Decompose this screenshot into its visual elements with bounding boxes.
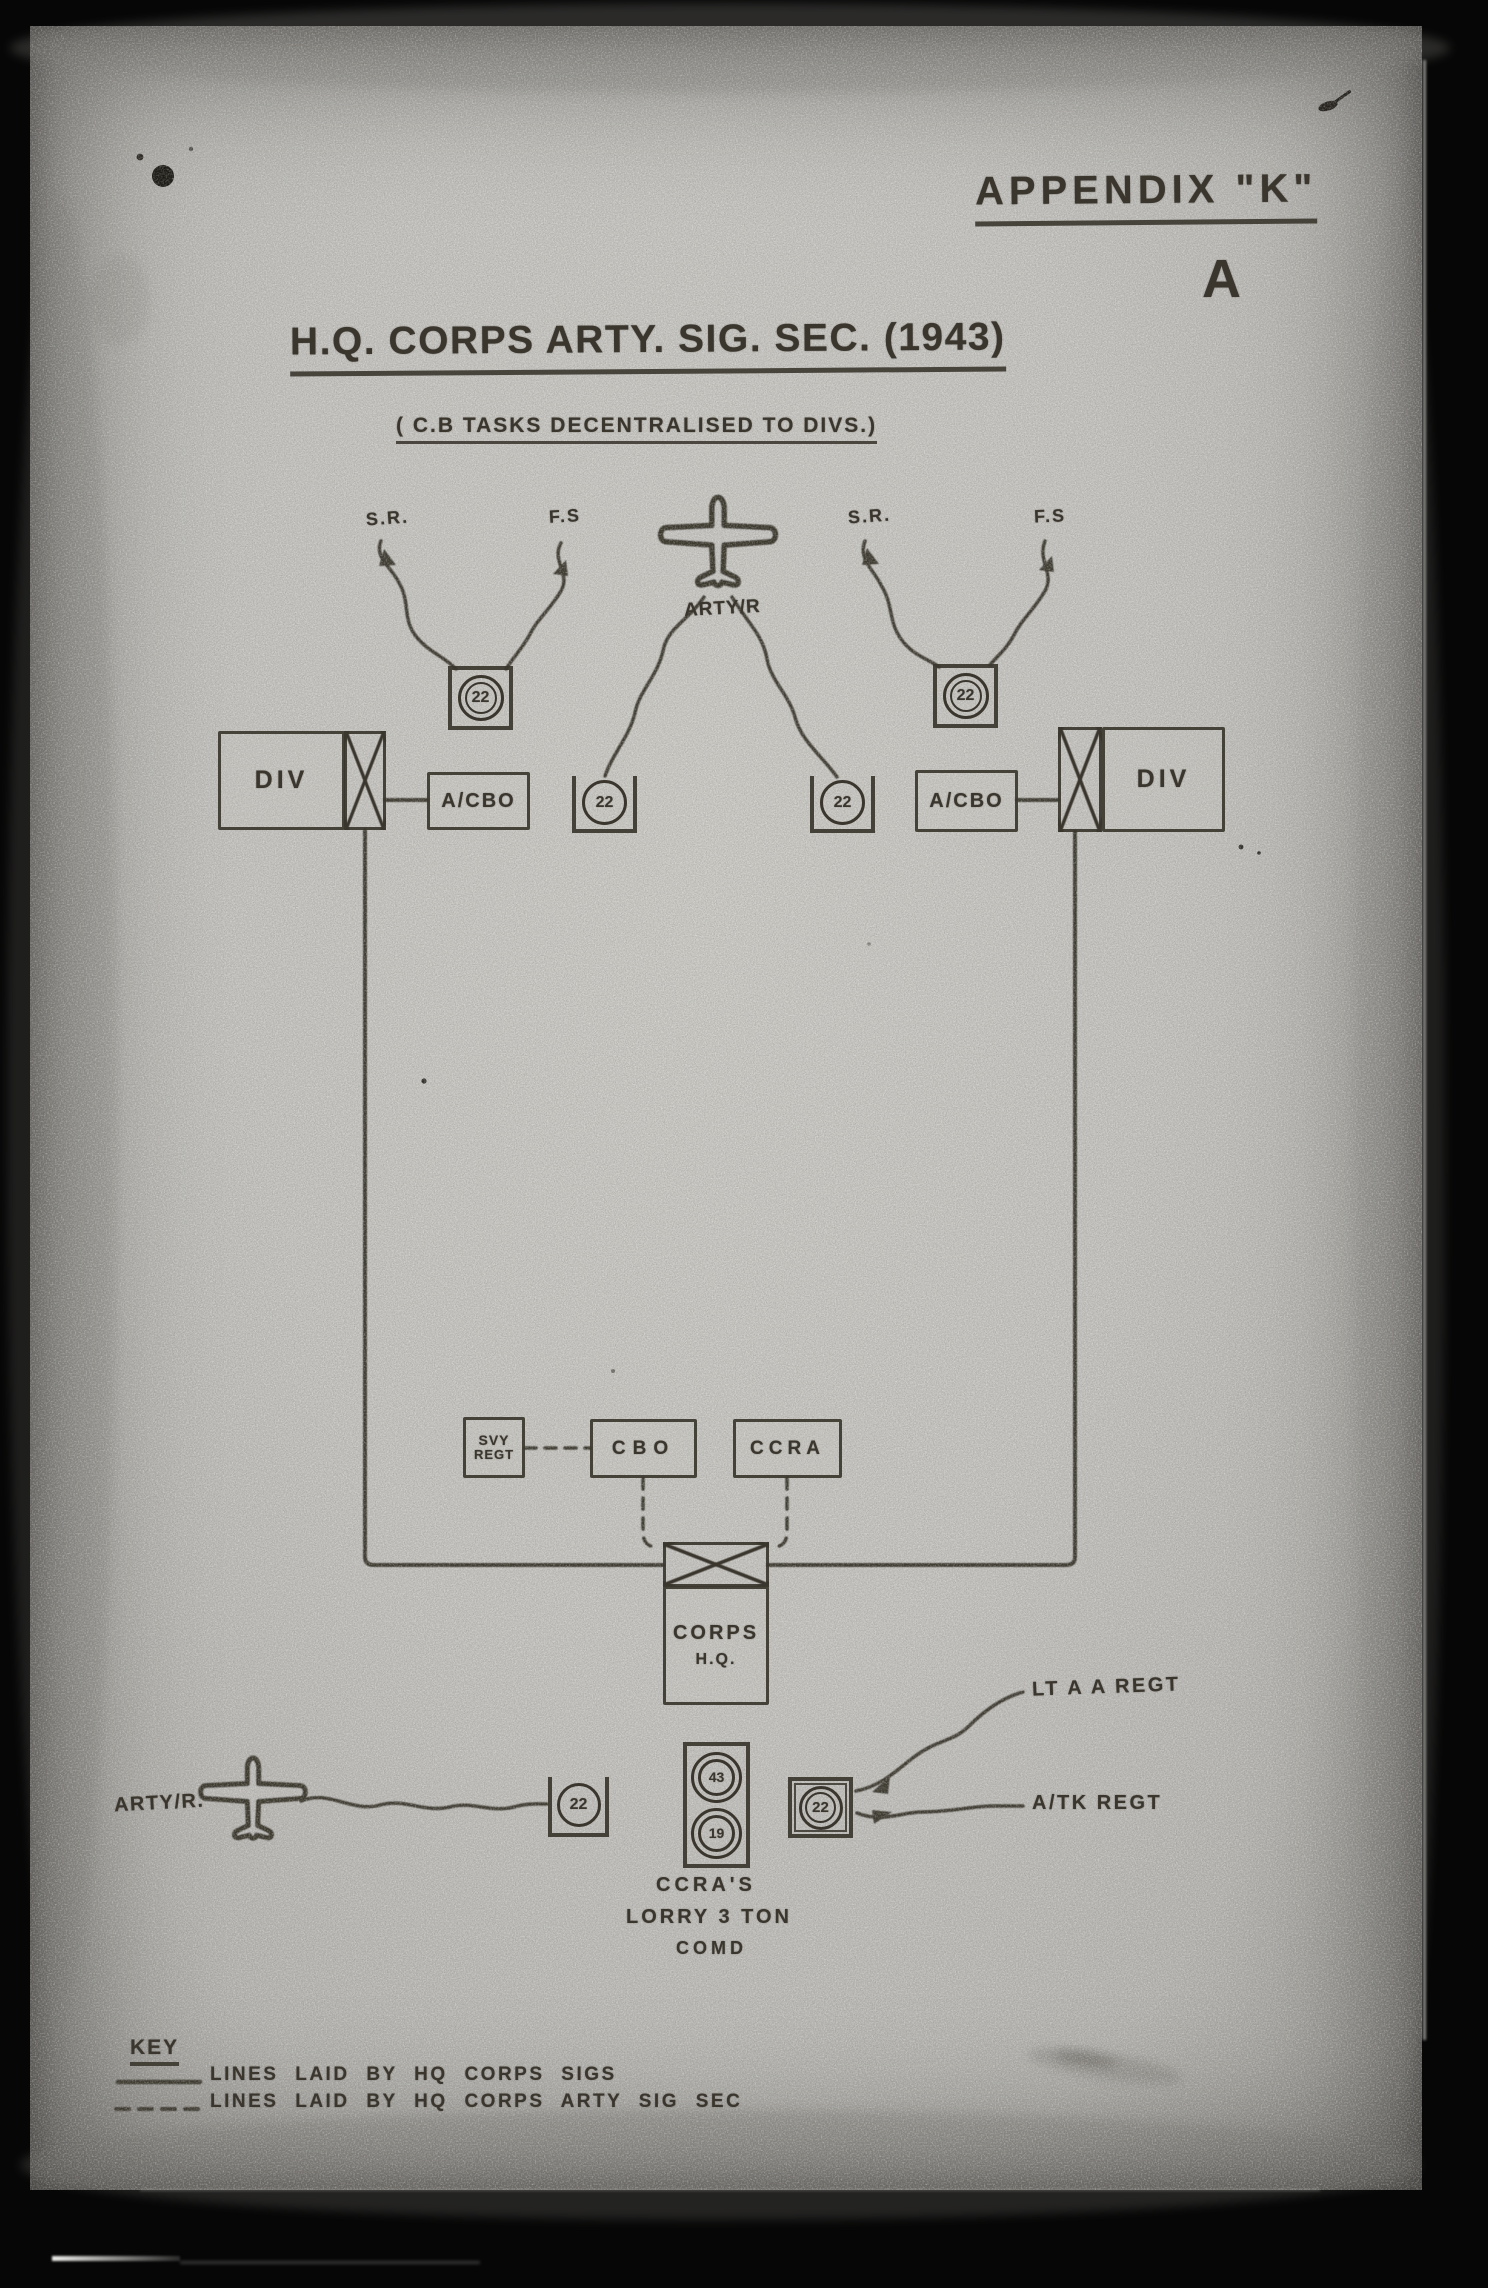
wireless-set-number: 22 — [957, 687, 975, 705]
sr-label-right: S.R. — [847, 505, 891, 529]
lorry-caption-line1: CCRA'S — [656, 1874, 756, 1897]
corner-letter: A — [1202, 248, 1243, 310]
sr-label-left: S.R. — [365, 507, 409, 531]
wireless-set-number: 22 — [570, 1796, 588, 1814]
wireless-set-22-left: 22 — [448, 666, 513, 730]
wireless-set-ring-inner: 43 — [698, 1759, 735, 1796]
wireless-set-22-bottom-air: 22 — [548, 1777, 609, 1837]
svy-regt-line1: SVY — [478, 1433, 509, 1448]
wireless-set-inner-square — [794, 1783, 847, 1832]
key-entry-dashed-label: LINES LAID BY HQ CORPS ARTY SIG SEC — [210, 2091, 742, 2113]
corps-hq-line1: CORPS — [673, 1619, 759, 1648]
svy-regt-box: SVY REGT — [463, 1417, 525, 1478]
key-heading: KEY — [130, 2036, 179, 2066]
wireless-set-ring: 22 — [820, 780, 865, 825]
div-box-left: DIV — [218, 731, 345, 830]
corps-hq-line2: H.Q. — [696, 1648, 737, 1671]
appendix-label: APPENDIX "K" — [975, 167, 1318, 227]
signals-exchange-icon-left — [344, 731, 386, 830]
wireless-set-ring: 22 — [458, 675, 504, 721]
lorry-caption-line2: LORRY 3 TON — [626, 1906, 792, 1929]
div-box-right: DIV — [1102, 727, 1225, 832]
wireless-set-number-top: 43 — [709, 1769, 725, 1785]
arty-r-label-bottom: ARTY/R. — [113, 1790, 205, 1818]
lorry-set-stack: 43 19 — [683, 1742, 750, 1868]
wireless-set-number-bottom: 19 — [709, 1825, 725, 1841]
cbo-label: CBO — [612, 1438, 675, 1460]
div-label-left: DIV — [255, 766, 309, 795]
cbo-box: CBO — [590, 1419, 697, 1478]
wireless-set-ring: 22 — [557, 1783, 601, 1827]
wireless-set-ring: 22 — [943, 673, 989, 719]
acbo-box-right: A/CBO — [915, 770, 1018, 832]
wireless-set-22-command: 22 — [788, 1777, 853, 1838]
signals-exchange-icon-corps — [663, 1542, 769, 1587]
wireless-set-ring-inner: 22 — [465, 682, 497, 714]
lorry-caption-line3: COMD — [676, 1938, 747, 1959]
wireless-set-number: 22 — [596, 794, 614, 812]
corps-hq-box: CORPS H.Q. — [663, 1586, 769, 1705]
page-subtitle: ( C.B TASKS DECENTRALISED TO DIVS.) — [396, 414, 877, 444]
atk-regt-label: A/TK REGT — [1032, 1792, 1162, 1815]
wireless-set-22-air-right: 22 — [810, 776, 875, 833]
wireless-set-number: 22 — [834, 794, 852, 812]
ccra-box: CCRA — [733, 1419, 842, 1478]
wireless-set-ring-inner: 19 — [698, 1815, 735, 1852]
svy-regt-line2: REGT — [474, 1448, 514, 1462]
page-title: H.Q. CORPS ARTY. SIG. SEC. (1943) — [290, 316, 1006, 377]
wireless-set-number: 22 — [472, 689, 490, 707]
signals-exchange-icon-right — [1058, 727, 1102, 832]
wireless-set-22-right: 22 — [933, 664, 998, 728]
fs-label-left: F.S — [548, 505, 581, 528]
wireless-set-ring: 43 — [691, 1752, 742, 1803]
fs-label-right: F.S — [1034, 505, 1067, 527]
wireless-set-ring: 22 — [582, 780, 627, 825]
wireless-set-ring: 19 — [691, 1808, 742, 1859]
wireless-set-22-air-left: 22 — [572, 776, 637, 833]
arty-r-label-top: ARTY/R — [683, 596, 761, 622]
acbo-label-left: A/CBO — [441, 790, 515, 813]
div-label-right: DIV — [1137, 765, 1191, 794]
acbo-label-right: A/CBO — [929, 790, 1003, 813]
key-entry-solid-label: LINES LAID BY HQ CORPS SIGS — [210, 2064, 617, 2086]
ccra-label: CCRA — [750, 1438, 825, 1460]
acbo-box-left: A/CBO — [427, 772, 530, 830]
wireless-set-ring-inner: 22 — [950, 680, 982, 712]
